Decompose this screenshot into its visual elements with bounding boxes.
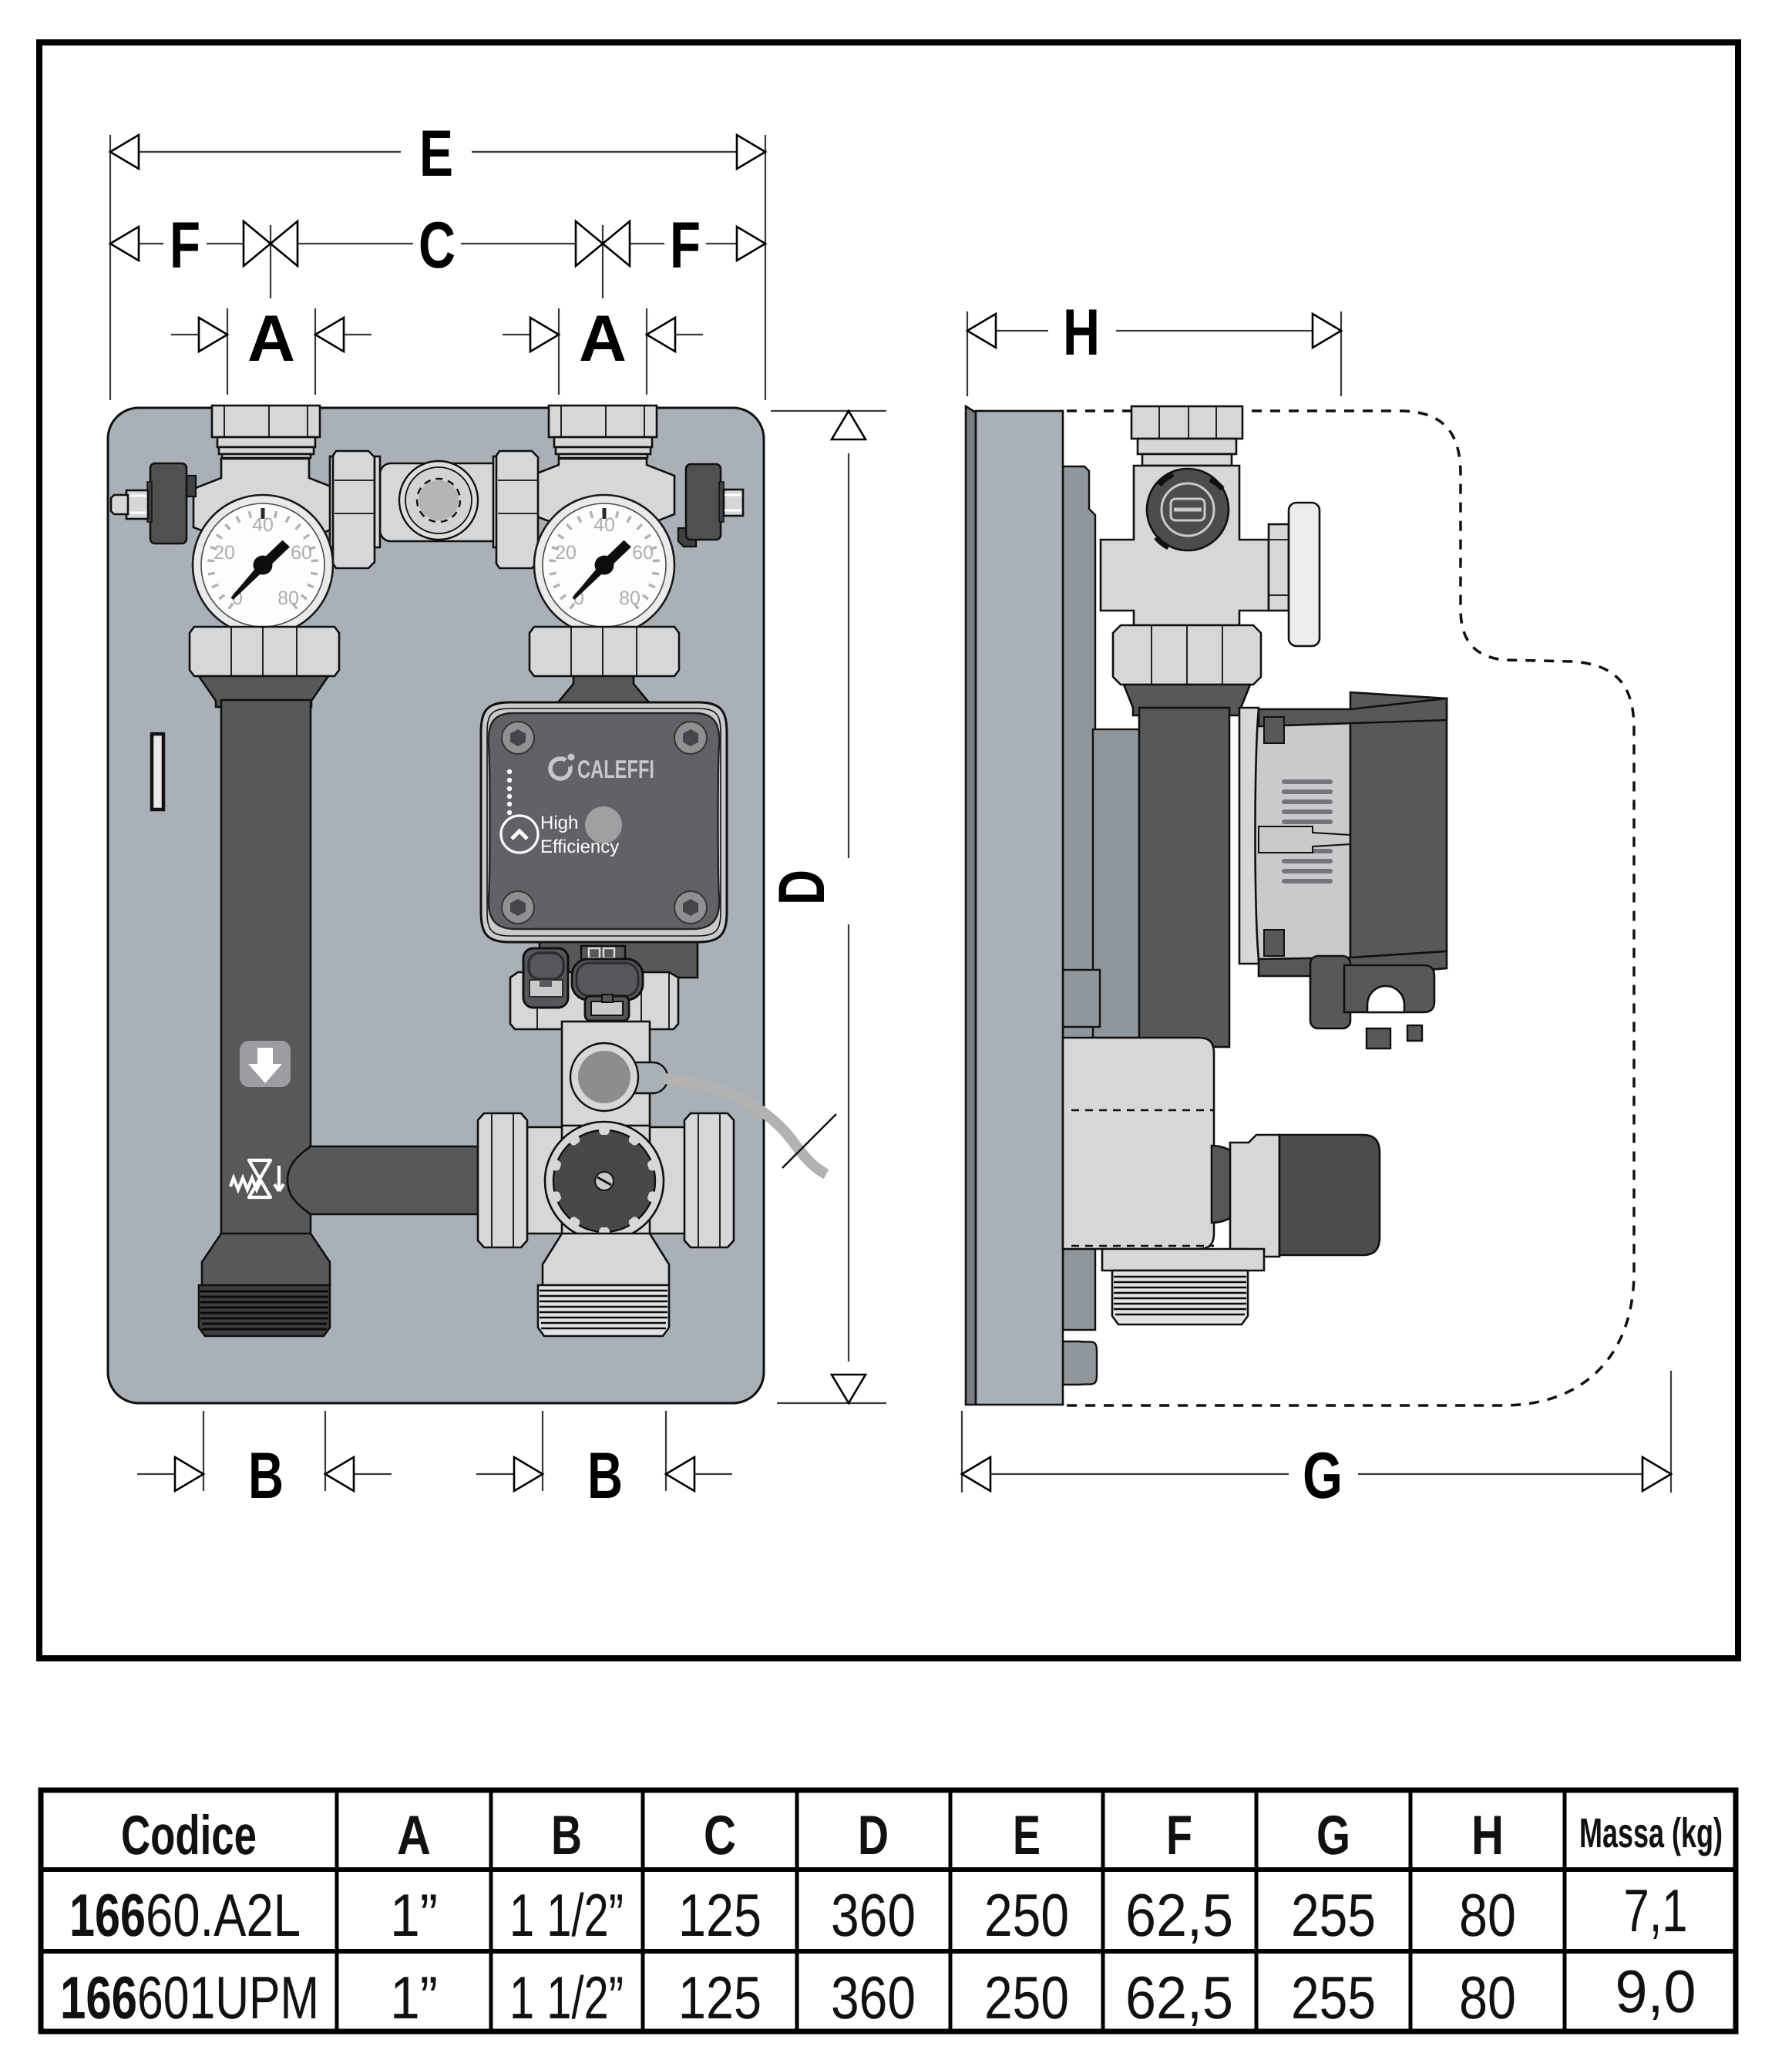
svg-text:1”: 1” xyxy=(390,1964,438,2031)
svg-text:16660.A2L: 16660.A2L xyxy=(69,1881,301,1949)
svg-text:80: 80 xyxy=(619,587,640,609)
svg-text:1 1/2”: 1 1/2” xyxy=(509,1881,624,1949)
svg-text:1 1/2”: 1 1/2” xyxy=(509,1964,624,2031)
svg-text:1”: 1” xyxy=(390,1881,438,1949)
svg-text:80: 80 xyxy=(1459,1964,1516,2031)
svg-text:60: 60 xyxy=(632,542,654,564)
svg-text:250: 250 xyxy=(984,1881,1069,1949)
svg-text:D: D xyxy=(765,870,839,905)
svg-text:D: D xyxy=(858,1805,889,1866)
svg-text:9,0: 9,0 xyxy=(1615,1957,1696,2025)
svg-text:250: 250 xyxy=(984,1964,1069,2031)
svg-text:62,5: 62,5 xyxy=(1125,1881,1233,1949)
svg-text:360: 360 xyxy=(831,1964,916,2031)
svg-text:360: 360 xyxy=(831,1881,916,1949)
svg-text:40: 40 xyxy=(252,514,274,536)
svg-text:20: 20 xyxy=(555,542,577,564)
svg-text:40: 40 xyxy=(593,514,615,536)
svg-text:255: 255 xyxy=(1291,1881,1376,1949)
svg-text:E: E xyxy=(419,117,453,190)
svg-text:125: 125 xyxy=(678,1964,762,2031)
svg-text:7,1: 7,1 xyxy=(1624,1876,1688,1944)
svg-text:C: C xyxy=(419,209,456,282)
svg-text:166601UPM: 166601UPM xyxy=(60,1964,319,2031)
svg-text:A: A xyxy=(579,302,627,375)
svg-text:Massa (kg): Massa (kg) xyxy=(1579,1810,1723,1856)
svg-text:High: High xyxy=(540,813,578,833)
svg-text:60: 60 xyxy=(291,542,312,564)
svg-text:G: G xyxy=(1303,1439,1343,1513)
svg-text:A: A xyxy=(397,1805,431,1866)
svg-text:H: H xyxy=(1063,296,1100,369)
svg-text:255: 255 xyxy=(1291,1964,1376,2031)
svg-text:F: F xyxy=(1166,1805,1192,1866)
svg-text:125: 125 xyxy=(678,1881,762,1949)
svg-text:A: A xyxy=(247,302,295,375)
svg-text:62,5: 62,5 xyxy=(1125,1964,1233,2031)
svg-text:H: H xyxy=(1471,1805,1504,1866)
svg-text:C: C xyxy=(704,1805,736,1866)
svg-text:F: F xyxy=(670,209,701,282)
svg-text:E: E xyxy=(1013,1805,1041,1866)
svg-text:80: 80 xyxy=(1459,1881,1516,1949)
svg-text:20: 20 xyxy=(213,542,235,564)
svg-text:B: B xyxy=(587,1439,623,1513)
svg-text:80: 80 xyxy=(277,587,299,609)
svg-text:B: B xyxy=(551,1805,582,1866)
svg-text:B: B xyxy=(248,1439,284,1513)
svg-text:F: F xyxy=(170,209,200,282)
svg-text:Codice: Codice xyxy=(121,1805,257,1866)
svg-text:G: G xyxy=(1316,1805,1350,1866)
svg-text:CALEFFI: CALEFFI xyxy=(577,755,654,783)
